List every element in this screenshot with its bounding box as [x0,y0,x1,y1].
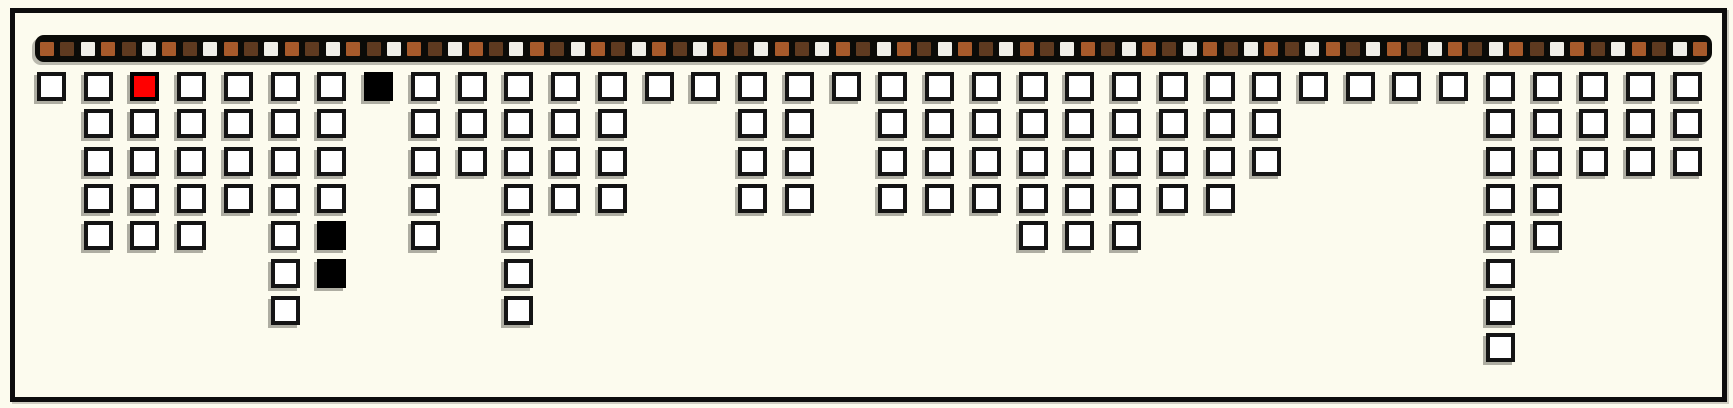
grid-cell [224,147,253,176]
grid-cell [1206,109,1235,138]
filled-cell-black [317,259,346,288]
grid-cell [1486,221,1515,250]
grid-cell [271,147,300,176]
grid-cell [458,109,487,138]
grid-cell [317,147,346,176]
highlight-cell-red [130,72,159,101]
grid-cell [1346,72,1375,101]
grid-cell [84,72,113,101]
grid-cell [1112,221,1141,250]
grid-cell [1579,147,1608,176]
grid-cell [785,147,814,176]
filled-cell-black [317,221,346,250]
grid-cell [224,184,253,213]
grid-cell [1019,147,1048,176]
grid-cell [317,184,346,213]
grid-cell [1065,147,1094,176]
grid-cell [1486,147,1515,176]
grid-cell [738,147,767,176]
grid-cell [551,72,580,101]
grid-cell [411,221,440,250]
grid-cell [224,109,253,138]
grid-cell [411,72,440,101]
grid-cell [1159,184,1188,213]
grid-cell [785,72,814,101]
grid-cell [1065,221,1094,250]
grid-cell [1533,147,1562,176]
grid-cell [177,221,206,250]
grid-cell [1252,147,1281,176]
grid-cell [1392,72,1421,101]
grid-cell [411,109,440,138]
grid-cell [271,221,300,250]
grid-cell [224,72,253,101]
grid-cell [1206,147,1235,176]
grid-cell [972,72,1001,101]
grid-cell [177,147,206,176]
grid-cell [598,109,627,138]
grid-cell [504,184,533,213]
grid-cell [271,184,300,213]
grid-cell [271,296,300,325]
grid-cell [1159,147,1188,176]
grid-cell [878,109,907,138]
canvas: { "palette": { "background": "#FCFBEE", … [0,0,1733,408]
grid-cell [130,109,159,138]
grid-cell [177,184,206,213]
grid-cell [738,109,767,138]
grid-cell [925,184,954,213]
grid-cell [1206,184,1235,213]
grid-cell [1673,147,1702,176]
grid-cell [1019,72,1048,101]
grid-cell [458,72,487,101]
grid-cell [1626,109,1655,138]
grid-cell [878,147,907,176]
grid-cell [785,184,814,213]
grid-cell [458,147,487,176]
grid-cell [1112,147,1141,176]
grid-cell [271,259,300,288]
grid-cell [317,72,346,101]
grid-cell [271,109,300,138]
grid-cell [972,109,1001,138]
grid-cell [1626,147,1655,176]
grid-cell [411,147,440,176]
grid-cell [1159,72,1188,101]
grid-cell [1159,109,1188,138]
grid-cell [504,147,533,176]
grid-cell [1252,109,1281,138]
grid-cell [1112,184,1141,213]
grid-cell [130,221,159,250]
grid-cell [271,72,300,101]
grid-cell [1112,109,1141,138]
grid-cell [925,72,954,101]
grid-cell [317,109,346,138]
grid-cell [598,72,627,101]
grid-cell [878,184,907,213]
grid-cell [411,184,440,213]
grid-cell [1533,72,1562,101]
grid-cell [1579,109,1608,138]
grid-cell [130,147,159,176]
grid-cell [691,72,720,101]
grid-cell [1533,109,1562,138]
grid-cell [504,72,533,101]
grid-cell [1019,109,1048,138]
grid-cell [177,72,206,101]
grid-cell [1065,109,1094,138]
grid-cell [1065,184,1094,213]
grid-cell [84,147,113,176]
grid-cell [972,147,1001,176]
grid-cell [1533,184,1562,213]
grid-cell [1439,72,1468,101]
grid-cell [84,184,113,213]
grid-cell [1533,221,1562,250]
grid-cell [551,109,580,138]
grid-cell [1206,72,1235,101]
grid-cell [832,72,861,101]
grid-cell [504,296,533,325]
grid-cell [1673,109,1702,138]
grid-cell [598,147,627,176]
grid-cell [1065,72,1094,101]
grid-cell [1486,72,1515,101]
grid-cell [551,184,580,213]
grid-cell [1486,109,1515,138]
grid-cell [1299,72,1328,101]
grid-cell [1019,184,1048,213]
grid-cell [1626,72,1655,101]
grid-cell [177,109,206,138]
grid-cell [738,72,767,101]
grid-cell [1486,296,1515,325]
grid-cell [1673,72,1702,101]
grid-cell [84,109,113,138]
grid-cell [738,184,767,213]
grid-cell [925,109,954,138]
grid-cell [1019,221,1048,250]
filled-cell-black [364,72,393,101]
grid-cell [878,72,907,101]
grid-cell [645,72,674,101]
grid-cell [37,72,66,101]
grid-cell [785,109,814,138]
grid-cell [130,184,159,213]
grid-cell [972,184,1001,213]
grid-cell [1579,72,1608,101]
grid-cell [1112,72,1141,101]
grid-cell [504,109,533,138]
grid-cell [1486,259,1515,288]
grid-cell [1486,333,1515,362]
grid-cell [504,221,533,250]
grid-cell [1252,72,1281,101]
grid-cell [1486,184,1515,213]
grid-cell [551,147,580,176]
grid-cell [598,184,627,213]
cell-grid [0,0,1733,408]
grid-cell [925,147,954,176]
grid-cell [84,221,113,250]
grid-cell [504,259,533,288]
